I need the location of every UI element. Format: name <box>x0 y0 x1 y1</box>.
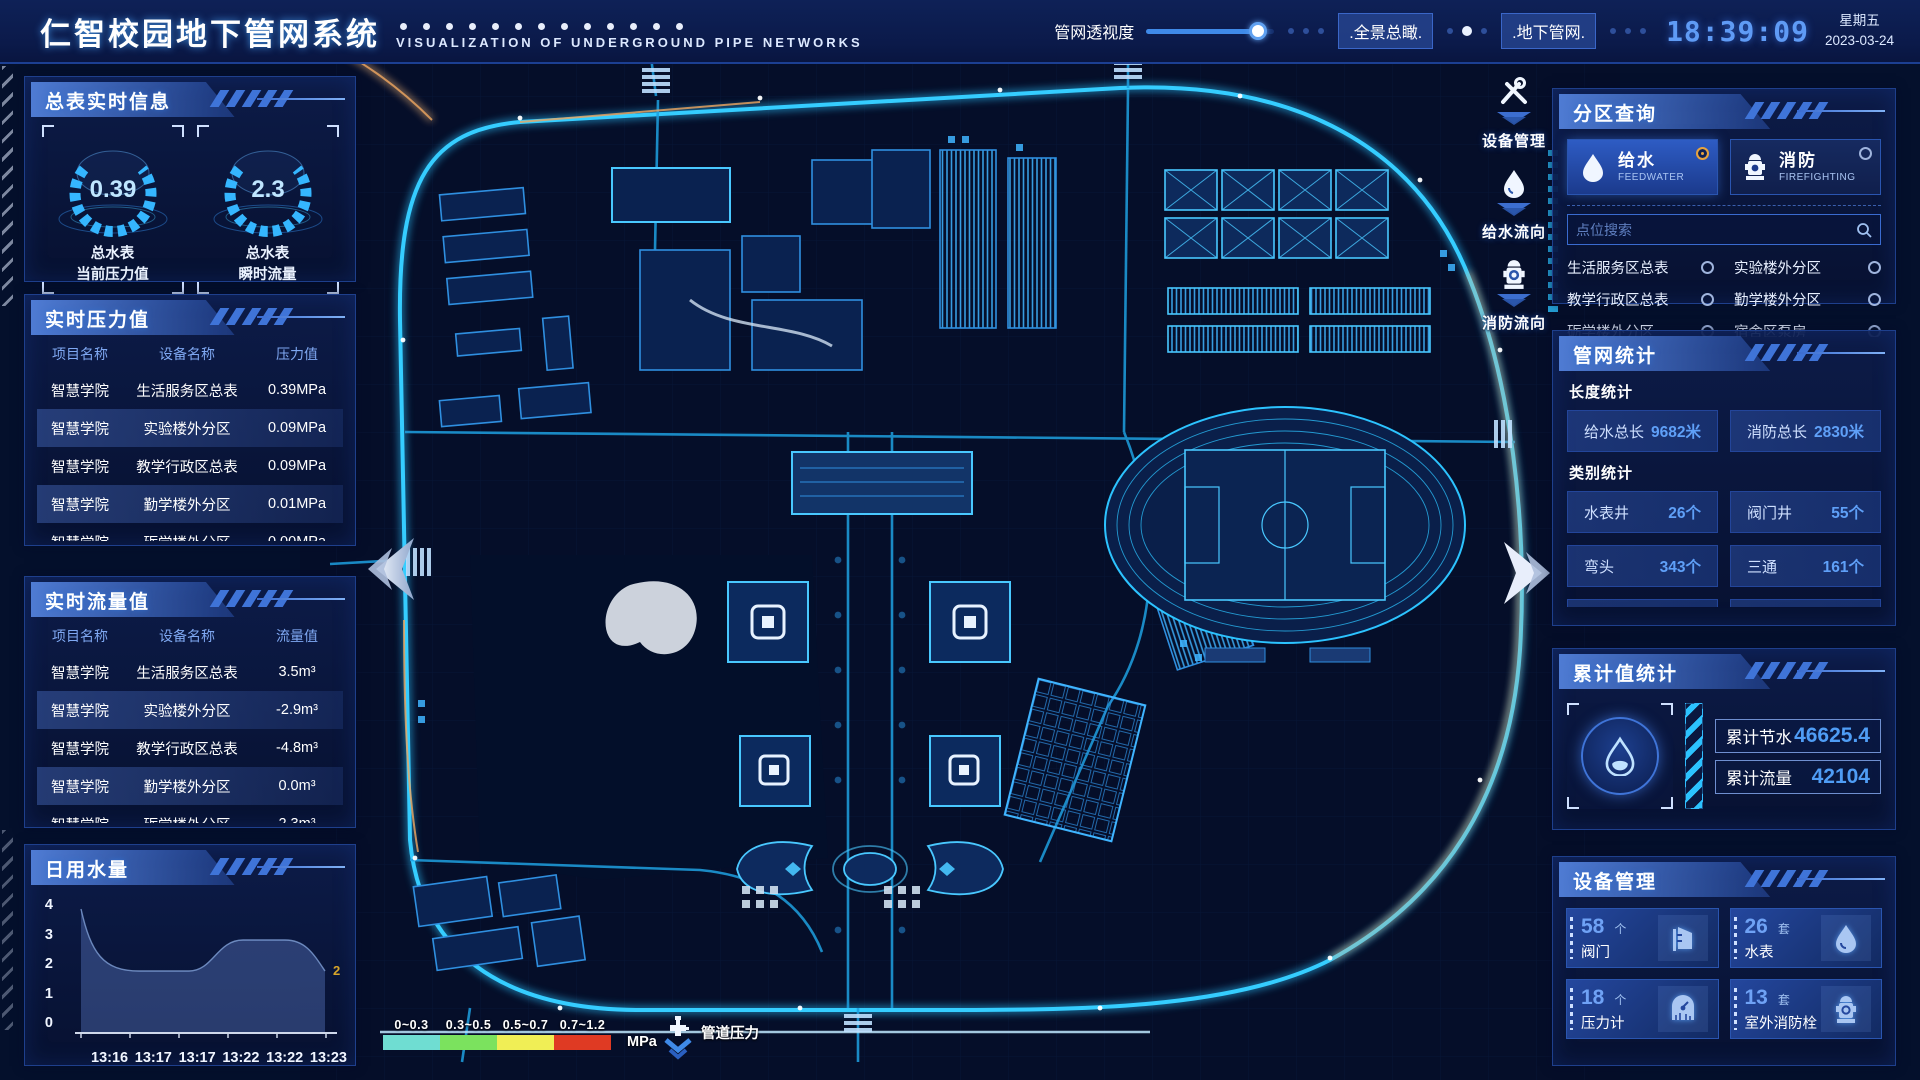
table-row[interactable]: 智慧学院实验楼外分区-2.9m³ <box>37 691 343 729</box>
date: 2023-03-24 <box>1825 31 1894 51</box>
toolbar-device-management[interactable]: 设备管理 <box>1482 74 1546 151</box>
table-row[interactable]: 智慧学院砺学楼外分区0.00MPa <box>37 523 343 541</box>
table-row[interactable]: 智慧学院教学行政区总表-4.8m³ <box>37 729 343 767</box>
gauge-total-pressure: 0.39 总水表 当前压力值 <box>42 125 184 294</box>
panel-title: 累计值统计 <box>1573 659 1678 686</box>
stat-tile[interactable]: 阀门井55个 <box>1730 491 1881 533</box>
cumulative-flow[interactable]: 累计流量42104 <box>1715 760 1881 794</box>
valve-icon <box>1668 923 1698 953</box>
point-search[interactable] <box>1567 214 1881 245</box>
stat-tile <box>1567 599 1718 607</box>
tap-icon <box>663 1014 693 1060</box>
point-item[interactable]: 教学行政区总表 <box>1567 283 1714 315</box>
dashed-divider <box>1567 205 1881 206</box>
svg-text:0.39: 0.39 <box>89 176 136 203</box>
category-stats-label: 类别统计 <box>1553 452 1895 491</box>
stat-tile[interactable]: 消防总长2830米 <box>1730 410 1881 452</box>
tools-icon <box>1497 76 1531 108</box>
pipe-opacity-slider[interactable] <box>1146 22 1274 40</box>
panel-realtime-pressure: 实时压力值 项目名称 设备名称 压力值 智慧学院生活服务区总表0.39MPa 智… <box>24 294 356 546</box>
point-item[interactable]: 实验楼外分区 <box>1734 251 1881 283</box>
dot-separator <box>1610 28 1646 34</box>
panel-zone-query: 分区查询 给水FEEDWATER 消防FIREFIGHTING 生活服务区总表 <box>1552 88 1896 304</box>
panel-title: 设备管理 <box>1573 867 1657 894</box>
search-input[interactable] <box>1576 222 1856 238</box>
panel-title: 管网统计 <box>1573 341 1657 368</box>
water-drop-icon <box>1501 167 1527 199</box>
tab-feedwater[interactable]: 给水FEEDWATER <box>1567 139 1718 195</box>
gauge-instant-flow: 2.3 总水表 瞬时流量 <box>197 125 339 294</box>
table-row[interactable]: 智慧学院砺学楼外分区2.3m³ <box>37 805 343 823</box>
device-card-pressure-gauge[interactable]: 18个 压力计 <box>1566 979 1719 1039</box>
legend-swatch <box>554 1035 611 1050</box>
panel-title: 实时压力值 <box>45 305 150 332</box>
pressure-table: 智慧学院生活服务区总表0.39MPa 智慧学院实验楼外分区0.09MPa 智慧学… <box>37 371 343 541</box>
overview-button[interactable]: .全景总瞰. <box>1338 13 1433 49</box>
device-card-outdoor-hydrant[interactable]: 13套 室外消防栓 <box>1730 979 1883 1039</box>
panel-title: 实时流量值 <box>45 587 150 614</box>
legend-unit: MPa <box>627 1034 657 1050</box>
hydrant-icon <box>1833 994 1859 1024</box>
legend-swatch <box>440 1035 497 1050</box>
panel-daily-water: 日用水量 43 21 0 2 13:1613:1713:17 13:2213:2… <box>24 844 356 1066</box>
gauge-label: 瞬时流量 <box>199 265 337 286</box>
flow-table: 智慧学院生活服务区总表3.5m³ 智慧学院实验楼外分区-2.9m³ 智慧学院教学… <box>37 653 343 823</box>
area-chart-plot: 2 <box>61 893 343 1043</box>
panel-title: 日用水量 <box>45 855 129 882</box>
stat-tile[interactable]: 水表井26个 <box>1567 491 1718 533</box>
chart-y-axis: 43 21 0 <box>35 897 53 1031</box>
device-card-valve[interactable]: 58个 阀门 <box>1566 908 1719 968</box>
device-card-water-meter[interactable]: 26套 水表 <box>1730 908 1883 968</box>
stripe-decor <box>1685 703 1703 809</box>
table-header: 项目名称 设备名称 流量值 <box>25 617 355 653</box>
search-icon[interactable] <box>1856 222 1872 238</box>
clock: 18:39:09 <box>1666 15 1809 48</box>
stat-tile[interactable]: 给水总长9682米 <box>1567 410 1718 452</box>
legend-label: 0.5~0.7 <box>497 1018 554 1032</box>
app-title: 仁智校园地下管网系统 <box>40 9 380 54</box>
radio-icon[interactable] <box>1868 293 1881 306</box>
radio-icon[interactable] <box>1701 293 1714 306</box>
radio-selected-icon <box>1696 147 1709 160</box>
panel-title: 分区查询 <box>1573 99 1657 126</box>
pond <box>606 581 697 654</box>
legend-swatch <box>497 1035 554 1050</box>
header-dots <box>400 23 863 30</box>
dot-separator <box>1288 28 1324 34</box>
panel-realtime-flow: 实时流量值 项目名称 设备名称 流量值 智慧学院生活服务区总表3.5m³ 智慧学… <box>24 576 356 828</box>
panel-realtime-meters: 总表实时信息 0.39 总水表 当前压力值 2.3 总 <box>24 76 356 282</box>
table-row[interactable]: 智慧学院实验楼外分区0.09MPa <box>37 409 343 447</box>
gauge-label: 当前压力值 <box>44 265 182 286</box>
dot-separator <box>1447 26 1487 36</box>
chevron-down-icon <box>1502 117 1526 125</box>
panel-network-stats: 管网统计 长度统计 给水总长9682米 消防总长2830米 类别统计 水表井26… <box>1552 330 1896 626</box>
gauge-dial-icon: 2.3 <box>208 131 328 239</box>
legend-swatch <box>383 1035 440 1050</box>
panel-device-management: 设备管理 58个 阀门 26套 水表 18个 压力计 <box>1552 856 1896 1066</box>
stat-tile <box>1730 599 1881 607</box>
weekday: 星期五 <box>1825 11 1894 31</box>
pipe-pressure-marker[interactable]: 管道压力 <box>663 1014 759 1060</box>
dashboard: { "colors":{"accent":"#2cc3ff","selected… <box>0 0 1920 1080</box>
cumulative-saved-water[interactable]: 累计节水46625.4 <box>1715 719 1881 753</box>
toolbar-firefighting-flow[interactable]: 消防流向 <box>1482 256 1546 333</box>
length-stats-label: 长度统计 <box>1553 371 1895 410</box>
map-toolbar: 设备管理 给水流向 消防流向 <box>1472 74 1556 347</box>
stat-tile[interactable]: 弯头343个 <box>1567 545 1718 587</box>
radio-unselected-icon <box>1859 147 1872 160</box>
radio-icon[interactable] <box>1868 261 1881 274</box>
water-badge <box>1567 703 1673 809</box>
stat-tile[interactable]: 三通161个 <box>1730 545 1881 587</box>
slider-knob[interactable] <box>1249 22 1267 40</box>
panel-cumulative-stats: 累计值统计 累计节水46625.4 累计流量42104 <box>1552 648 1896 830</box>
table-row[interactable]: 智慧学院教学行政区总表0.09MPa <box>37 447 343 485</box>
map-next-arrow[interactable] <box>1496 540 1556 606</box>
pressure-legend: 0~0.3 0.3~0.5 0.5~0.7 0.7~1.2 MPa <box>383 1018 657 1050</box>
point-item[interactable]: 勤学楼外分区 <box>1734 283 1881 315</box>
gauge-label: 总水表 <box>199 244 337 265</box>
gauge-label: 总水表 <box>44 244 182 265</box>
panel-title: 总表实时信息 <box>45 87 171 114</box>
point-item[interactable]: 生活服务区总表 <box>1567 251 1714 283</box>
legend-label: 0.3~0.5 <box>440 1018 497 1032</box>
hydrant-icon <box>1743 152 1767 182</box>
edge-decor <box>2 830 13 1030</box>
map-prev-arrow[interactable] <box>362 536 422 602</box>
radio-icon[interactable] <box>1701 261 1714 274</box>
water-drop-icon <box>1580 152 1606 182</box>
table-row[interactable]: 智慧学院勤学楼外分区0.0m³ <box>37 767 343 805</box>
legend-label: 0~0.3 <box>383 1018 440 1032</box>
svg-text:2.3: 2.3 <box>251 176 284 203</box>
tab-firefighting[interactable]: 消防FIREFIGHTING <box>1730 139 1881 195</box>
gauge-dial-icon: 0.39 <box>53 131 173 239</box>
table-row[interactable]: 智慧学院生活服务区总表0.39MPa <box>37 371 343 409</box>
table-row[interactable]: 智慧学院勤学楼外分区0.01MPa <box>37 485 343 523</box>
toolbar-feedwater-flow[interactable]: 给水流向 <box>1482 165 1546 242</box>
pressure-gauge-icon <box>1668 994 1698 1024</box>
chart-x-axis: 13:1613:1713:17 13:2213:2213:23 <box>61 1048 349 1066</box>
app-subtitle: VISUALIZATION OF UNDERGROUND PIPE NETWOR… <box>396 35 863 50</box>
chevron-down-icon <box>1502 208 1526 216</box>
app-header: 仁智校园地下管网系统 VISUALIZATION OF UNDERGROUND … <box>0 0 1920 64</box>
table-header: 项目名称 设备名称 压力值 <box>25 335 355 371</box>
opacity-slider-label: 管网透视度 <box>1054 19 1134 43</box>
point-list: 生活服务区总表 实验楼外分区 教学行政区总表 勤学楼外分区 砺学楼外分区 宿舍区… <box>1567 251 1881 337</box>
water-drop-icon <box>1603 736 1637 776</box>
water-drop-icon <box>1833 923 1859 953</box>
table-row[interactable]: 智慧学院生活服务区总表3.5m³ <box>37 653 343 691</box>
daily-water-chart: 43 21 0 2 13:1613:1713:17 13:2213:2213:2… <box>25 885 355 1066</box>
svg-text:2: 2 <box>333 963 340 978</box>
chevron-down-icon <box>1502 299 1526 307</box>
underground-button[interactable]: .地下管网. <box>1501 13 1596 49</box>
edge-decor <box>2 66 13 306</box>
hydrant-icon <box>1501 258 1527 290</box>
legend-label: 0.7~1.2 <box>554 1018 611 1032</box>
